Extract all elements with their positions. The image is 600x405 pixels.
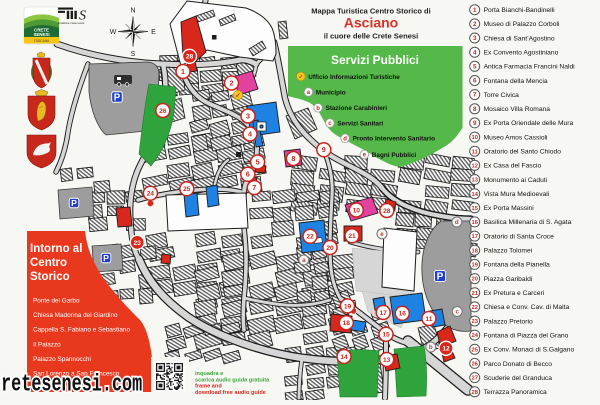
svg-text:5: 5 xyxy=(473,63,477,70)
svg-text:17: 17 xyxy=(380,310,388,317)
svg-text:b: b xyxy=(429,344,433,351)
svg-text:9: 9 xyxy=(473,120,477,127)
svg-text:E: E xyxy=(151,29,156,36)
svg-text:28: 28 xyxy=(186,54,194,61)
svg-text:Centro: Centro xyxy=(30,257,67,269)
svg-text:Storico: Storico xyxy=(30,271,70,283)
svg-text:c: c xyxy=(455,309,459,316)
svg-text:Cappella S. Fabiano e Sebastia: Cappella S. Fabiano e Sebastiano xyxy=(33,327,130,334)
svg-text:6: 6 xyxy=(246,170,250,179)
svg-text:Ex Pretura e Carceri: Ex Pretura e Carceri xyxy=(484,290,545,297)
svg-text:Ufficio Informazioni Turistich: Ufficio Informazioni Turistiche xyxy=(308,74,400,81)
svg-text:3: 3 xyxy=(473,35,477,42)
svg-text:13: 13 xyxy=(383,357,391,364)
svg-text:inquadra e: inquadra e xyxy=(195,371,223,377)
svg-text:Chiesa e Conv. Cav. di Malta: Chiesa e Conv. Cav. di Malta xyxy=(484,304,570,311)
svg-text:Stazione Carabinieri: Stazione Carabinieri xyxy=(326,105,388,112)
svg-text:P: P xyxy=(103,253,109,263)
svg-text:19: 19 xyxy=(344,303,352,310)
svg-text:Fontana di Piazza del Grano: Fontana di Piazza del Grano xyxy=(484,332,569,339)
svg-text:download free audio guide: download free audio guide xyxy=(195,390,266,396)
svg-text:21: 21 xyxy=(348,233,356,240)
svg-text:Museo Amos Cassioli: Museo Amos Cassioli xyxy=(484,134,548,141)
svg-text:Servizi Sanitari: Servizi Sanitari xyxy=(337,120,383,127)
svg-text:Bagni Pubblici: Bagni Pubblici xyxy=(372,152,417,159)
svg-text:5: 5 xyxy=(256,157,260,166)
svg-text:Oratorio del Santo Chiodo: Oratorio del Santo Chiodo xyxy=(484,149,562,156)
svg-text:e: e xyxy=(380,231,384,238)
svg-text:Chiesa di Sant’Agostino: Chiesa di Sant’Agostino xyxy=(484,35,555,42)
svg-text:TOSCANA: TOSCANA xyxy=(34,39,50,43)
svg-text:Fontana della Mencia: Fontana della Mencia xyxy=(484,78,548,85)
svg-text:25: 25 xyxy=(471,347,478,353)
svg-text:16: 16 xyxy=(399,311,407,318)
svg-text:Pronto Intervento Sanitario: Pronto Intervento Sanitario xyxy=(353,136,435,143)
svg-text:21: 21 xyxy=(471,291,478,297)
svg-text:13: 13 xyxy=(471,178,478,184)
svg-text:12: 12 xyxy=(442,346,450,353)
svg-text:d: d xyxy=(455,219,459,226)
svg-text:d: d xyxy=(343,136,347,142)
svg-text:28: 28 xyxy=(383,208,391,215)
svg-text:10: 10 xyxy=(353,207,361,214)
svg-text:Ex Porta Oriendale delle Mura: Ex Porta Oriendale delle Mura xyxy=(484,120,574,127)
svg-text:il cuore delle Crete Senesi: il cuore delle Crete Senesi xyxy=(324,32,419,41)
svg-text:Antica Farmacia Francini Naldi: Antica Farmacia Francini Naldi xyxy=(484,64,576,71)
svg-text:9: 9 xyxy=(322,145,326,154)
svg-text:a: a xyxy=(302,257,306,264)
svg-text:15: 15 xyxy=(382,332,390,339)
svg-text:b: b xyxy=(316,106,320,112)
svg-text:Monumento ai Caduti: Monumento ai Caduti xyxy=(484,177,548,184)
svg-text:18: 18 xyxy=(343,320,351,327)
svg-text:Ex Porta Massini: Ex Porta Massini xyxy=(484,205,535,212)
svg-text:Ex Conv. Monaci di S.Galgano: Ex Conv. Monaci di S.Galgano xyxy=(484,347,575,354)
svg-text:Oratorio di Santa Croce: Oratorio di Santa Croce xyxy=(484,233,555,240)
svg-text:1: 1 xyxy=(473,7,477,14)
svg-text:Basilica Millenaria di S. Agat: Basilica Millenaria di S. Agata xyxy=(484,219,572,226)
svg-text:28: 28 xyxy=(471,390,478,396)
svg-text:P: P xyxy=(114,92,121,103)
svg-text:frame and: frame and xyxy=(195,384,222,390)
svg-text:Parco Donato di Becco: Parco Donato di Becco xyxy=(484,361,553,368)
svg-text:Palazzo Tolomei: Palazzo Tolomei xyxy=(484,248,533,255)
svg-text:7: 7 xyxy=(252,183,256,192)
svg-text:2: 2 xyxy=(230,78,234,87)
svg-text:8: 8 xyxy=(473,106,477,113)
svg-text:10: 10 xyxy=(471,135,477,141)
svg-text:Palazzo Spannocchi: Palazzo Spannocchi xyxy=(33,356,91,363)
svg-text:11: 11 xyxy=(425,316,432,323)
svg-text:Asciano: Asciano xyxy=(344,15,398,31)
svg-text:W: W xyxy=(110,29,117,36)
svg-text:14: 14 xyxy=(340,354,348,361)
svg-text:20: 20 xyxy=(471,277,477,283)
svg-text:3: 3 xyxy=(246,111,250,120)
svg-text:SENESI: SENESI xyxy=(33,32,49,37)
svg-text:11: 11 xyxy=(472,149,479,155)
svg-text:15: 15 xyxy=(471,206,478,212)
svg-text:23: 23 xyxy=(471,319,478,325)
svg-text:6: 6 xyxy=(473,78,477,85)
svg-text:P: P xyxy=(437,272,444,283)
svg-text:27: 27 xyxy=(471,376,477,382)
svg-text:12: 12 xyxy=(471,163,477,169)
svg-text:Porta Bianchi-Bandinelli: Porta Bianchi-Bandinelli xyxy=(484,7,556,14)
svg-text:Mosaico Villa Romana: Mosaico Villa Romana xyxy=(484,106,551,113)
svg-text:Il Palazzo: Il Palazzo xyxy=(33,341,61,348)
svg-text:16: 16 xyxy=(471,220,478,226)
svg-text:Piazza Garibaldi: Piazza Garibaldi xyxy=(484,276,533,283)
svg-text:24: 24 xyxy=(147,191,155,198)
svg-text:19: 19 xyxy=(471,263,478,269)
svg-text:24: 24 xyxy=(471,333,478,339)
svg-text:Chiesa Madonna del Giardino: Chiesa Madonna del Giardino xyxy=(33,312,118,319)
svg-text:Scuderie del Granduca: Scuderie del Granduca xyxy=(484,375,553,382)
svg-text:Ex Casa del Fascio: Ex Casa del Fascio xyxy=(484,163,542,170)
svg-text:✓: ✓ xyxy=(298,74,303,80)
svg-text:4: 4 xyxy=(473,49,477,56)
svg-text:2: 2 xyxy=(473,21,477,28)
svg-text:✓: ✓ xyxy=(235,93,240,100)
svg-text:17: 17 xyxy=(471,234,477,240)
svg-text:P: P xyxy=(71,198,77,208)
svg-text:7: 7 xyxy=(473,92,477,99)
svg-text:25: 25 xyxy=(183,186,191,193)
svg-text:8: 8 xyxy=(291,154,295,163)
svg-text:Terrazza Panoramica: Terrazza Panoramica xyxy=(484,389,547,396)
svg-text:Ponte del Garbo: Ponte del Garbo xyxy=(33,298,80,305)
svg-text:20: 20 xyxy=(326,245,334,252)
svg-text:Vista Mura Medioevali: Vista Mura Medioevali xyxy=(484,191,550,198)
svg-text:cretesenesi.com: cretesenesi.com xyxy=(0,372,142,399)
svg-text:14: 14 xyxy=(471,192,478,198)
svg-text:1: 1 xyxy=(181,67,185,76)
svg-text:Servizi Pubblici: Servizi Pubblici xyxy=(331,53,419,67)
svg-text:18: 18 xyxy=(471,248,478,254)
svg-text:N: N xyxy=(130,8,135,15)
svg-text:Intorno al: Intorno al xyxy=(30,243,82,255)
svg-text:Fontana della Pianella: Fontana della Pianella xyxy=(484,262,550,269)
svg-text:Palazzo Pretorio: Palazzo Pretorio xyxy=(484,318,533,325)
svg-text:Torre Civica: Torre Civica xyxy=(484,92,520,99)
svg-text:22: 22 xyxy=(306,234,314,241)
svg-text:Ex Convento Agostiniano: Ex Convento Agostiniano xyxy=(484,50,559,57)
svg-text:26: 26 xyxy=(471,362,478,368)
svg-text:fondazione musei senesi: fondazione musei senesi xyxy=(58,22,85,25)
svg-text:S: S xyxy=(131,51,136,58)
svg-text:scarica audio guida gratuita: scarica audio guida gratuita xyxy=(195,377,270,383)
svg-text:Museo di Palazzo Corboli: Museo di Palazzo Corboli xyxy=(484,21,560,28)
svg-text:26: 26 xyxy=(159,108,167,115)
svg-text:23: 23 xyxy=(134,240,142,247)
svg-text:4: 4 xyxy=(248,129,252,138)
svg-text:22: 22 xyxy=(471,305,477,311)
svg-text:Municipio: Municipio xyxy=(316,89,346,96)
